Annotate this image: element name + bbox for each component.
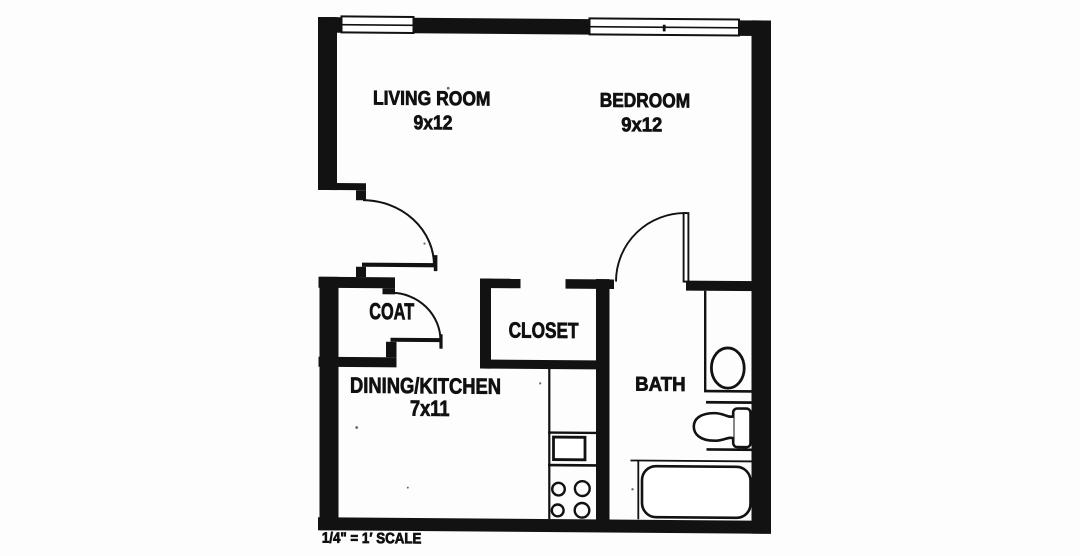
svg-text:COAT: COAT: [369, 298, 414, 324]
svg-text:7x11: 7x11: [410, 396, 450, 421]
svg-text:BEDROOM: BEDROOM: [600, 90, 691, 113]
svg-text:CLOSET: CLOSET: [509, 318, 579, 344]
svg-text:9x12: 9x12: [414, 112, 453, 134]
svg-text:BATH: BATH: [635, 374, 686, 396]
svg-text:LIVING ROOM: LIVING ROOM: [373, 88, 491, 111]
svg-text:9x12: 9x12: [621, 114, 662, 136]
svg-text:1/4" = 1′ SCALE: 1/4" = 1′ SCALE: [322, 530, 422, 548]
